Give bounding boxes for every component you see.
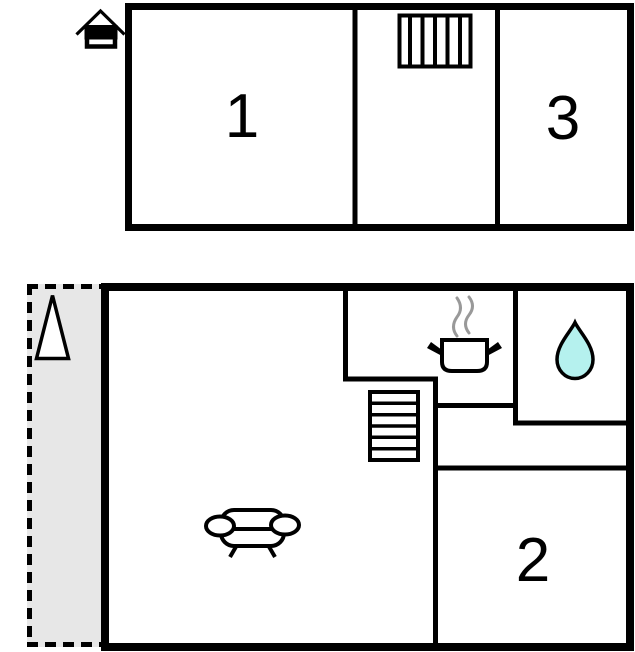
room-3-label: 3: [546, 84, 580, 153]
upper-floor: 1 3: [129, 7, 631, 228]
pot-body: [442, 340, 487, 371]
room-2-label: 2: [516, 526, 550, 595]
floor-plan: 1 3: [0, 0, 635, 652]
ladder-icon: [400, 16, 471, 67]
ground-floor: 2: [27, 284, 630, 647]
room-1-label: 1: [225, 82, 259, 151]
house-icon: [77, 11, 125, 47]
sofa-armrest: [271, 516, 299, 535]
staircase-icon: [369, 392, 419, 460]
sofa-armrest: [206, 517, 234, 536]
terrace: [27, 284, 102, 647]
floor-plan-canvas: 1 3: [0, 0, 635, 652]
